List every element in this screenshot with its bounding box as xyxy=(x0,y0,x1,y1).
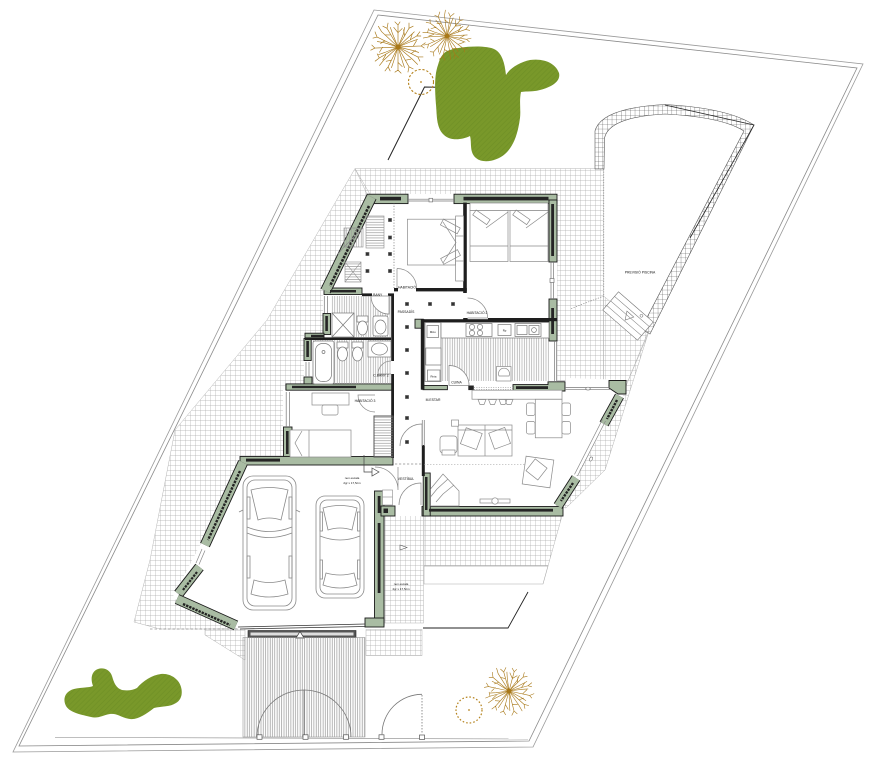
svg-text:PREVISIÓ PISCINA: PREVISIÓ PISCINA xyxy=(625,270,656,275)
svg-text:Rnta: Rnta xyxy=(431,375,437,379)
svg-text:4gr x 17,5cm: 4gr x 17,5cm xyxy=(392,587,410,591)
svg-text:C.BANY 2: C.BANY 2 xyxy=(373,374,389,378)
svg-text:HABITACIÓ 3: HABITACIÓ 3 xyxy=(355,398,376,403)
svg-text:CUINA: CUINA xyxy=(451,381,462,385)
svg-text:VESTÍBUL: VESTÍBUL xyxy=(398,477,415,481)
svg-text:nen escala: nen escala xyxy=(394,582,409,586)
svg-text:Rp: Rp xyxy=(503,329,507,333)
svg-text:HABITACIÓ 2: HABITACIÓ 2 xyxy=(467,310,488,315)
svg-text:nen escala: nen escala xyxy=(345,476,360,480)
svg-text:Mico: Mico xyxy=(430,330,436,334)
svg-text:PASSADÍS: PASSADÍS xyxy=(398,310,415,314)
svg-text:2gr x 17,5cm: 2gr x 17,5cm xyxy=(343,481,361,485)
svg-text:C.BANY: C.BANY xyxy=(370,293,383,297)
svg-text:M.ESTAR: M.ESTAR xyxy=(426,398,441,402)
svg-text:HABITACIÓ: HABITACIÓ xyxy=(398,285,416,290)
